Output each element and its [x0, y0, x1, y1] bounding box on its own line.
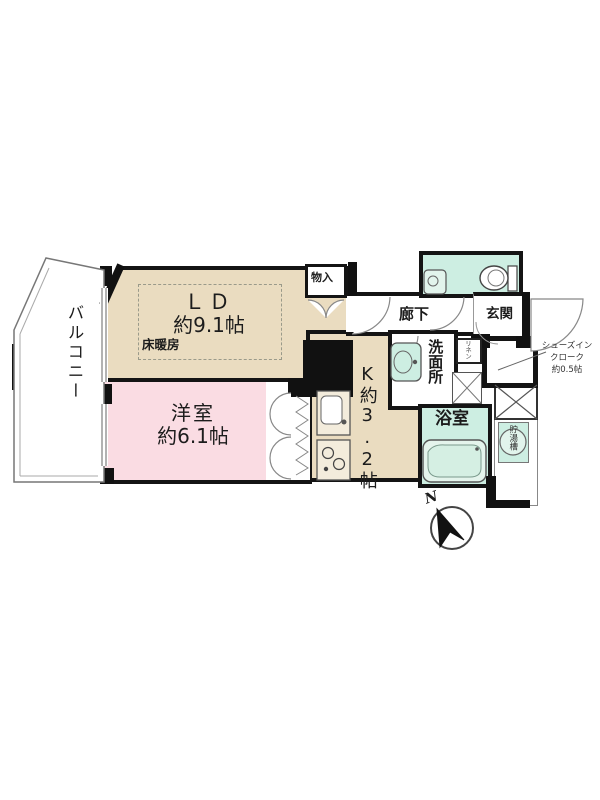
wall-center-step: [288, 378, 305, 397]
shoe-closet-note-line1: シューズイン: [538, 340, 596, 352]
entrance-label: 玄関: [486, 307, 513, 323]
western-room-size: 約6.1帖: [118, 425, 268, 448]
bathroom-label: 浴室: [435, 410, 469, 430]
ld-label: ＬＤ: [150, 290, 268, 314]
wall-center-block: [303, 340, 353, 397]
kitchen-label: K約3.2帖: [356, 364, 377, 464]
floor-heating-label: 床暖房: [142, 338, 180, 352]
compass-north-arrow: [437, 509, 464, 547]
shoe-closet-note: シューズイン クローク 約0.5帖: [538, 340, 596, 376]
pipe-space-a: [452, 372, 482, 404]
shoe-closet-note-line3: 約0.5帖: [538, 364, 596, 376]
water-tank-label: 貯湯槽: [507, 425, 517, 463]
room-toilet: [419, 251, 523, 298]
compass-north-label: N: [423, 488, 440, 507]
wall-column-bottom-h: [486, 500, 530, 508]
pipe-space-b: [494, 384, 538, 420]
storage-label: 物入: [311, 272, 333, 285]
linen-label: リネン: [463, 340, 470, 362]
balcony-label: バルコニー: [64, 304, 83, 459]
room-washroom: [388, 330, 458, 410]
western-room-label-block: 洋室 約6.1帖: [118, 402, 268, 448]
shoe-closet-note-line2: クローク: [538, 352, 596, 364]
wall-top-step: [348, 262, 357, 296]
ld-label-block: ＬＤ 約9.1帖: [150, 290, 268, 337]
hallway-label: 廊下: [399, 306, 429, 323]
compass-circle: [431, 507, 473, 549]
wall-left-mid: [100, 384, 112, 404]
wall-left-top: [100, 266, 112, 286]
wall-balcony-left: [12, 344, 52, 390]
washroom-label: 洗面所: [426, 339, 443, 409]
wall-left-bottom: [100, 468, 114, 484]
ld-size: 約9.1帖: [150, 314, 268, 337]
western-room-label: 洋室: [118, 402, 268, 425]
floor-plan: バルコニー ＬＤ 約9.1帖 床暖房 洋室 約6.1帖 K約3.2帖 物入 廊下…: [0, 0, 600, 800]
wall-entrance-step: [516, 336, 540, 348]
